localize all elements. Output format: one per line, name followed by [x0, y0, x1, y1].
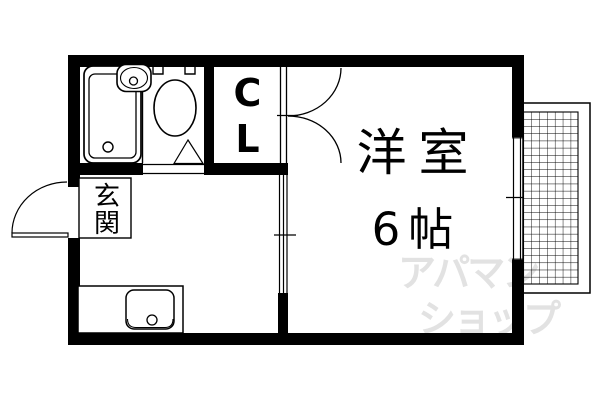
wall-right-upper	[512, 55, 524, 137]
closet-door-arc-top	[288, 68, 341, 116]
closet-label: CL	[214, 74, 280, 160]
toilet-tank-right	[185, 67, 195, 74]
kitchen-faucet	[147, 315, 157, 325]
wall-divider-lower	[278, 293, 288, 333]
toilet-bowl	[154, 80, 196, 136]
wall-closet-bottom	[204, 163, 288, 175]
washbasin	[117, 65, 151, 92]
balcony	[523, 103, 590, 293]
wall-right-lower	[512, 260, 524, 345]
entrance-label: 玄関	[79, 179, 131, 238]
balcony-grid	[524, 112, 579, 284]
floorplan-canvas: アパマン ショップ	[0, 0, 600, 400]
wall-bath-bottom	[68, 163, 143, 175]
entrance-door-swing-arc	[12, 182, 67, 233]
sliding-door	[274, 175, 296, 293]
kitchen-sink-counter	[78, 286, 183, 333]
wall-bath-closet	[204, 55, 214, 175]
room-size: 6帖	[325, 206, 500, 254]
bathtub-drain	[103, 142, 113, 152]
toilet-tank-left	[153, 67, 163, 74]
entrance-door-leaf	[12, 233, 68, 237]
bathroom-door-opening	[143, 165, 204, 174]
washbasin-faucet	[130, 77, 138, 85]
toilet	[153, 67, 203, 164]
wall-bottom	[68, 333, 524, 345]
western-room-label: 洋室 6帖	[325, 126, 500, 254]
bathroom-door-triangle	[174, 140, 203, 164]
room-name: 洋室	[325, 126, 500, 180]
window	[506, 137, 524, 260]
